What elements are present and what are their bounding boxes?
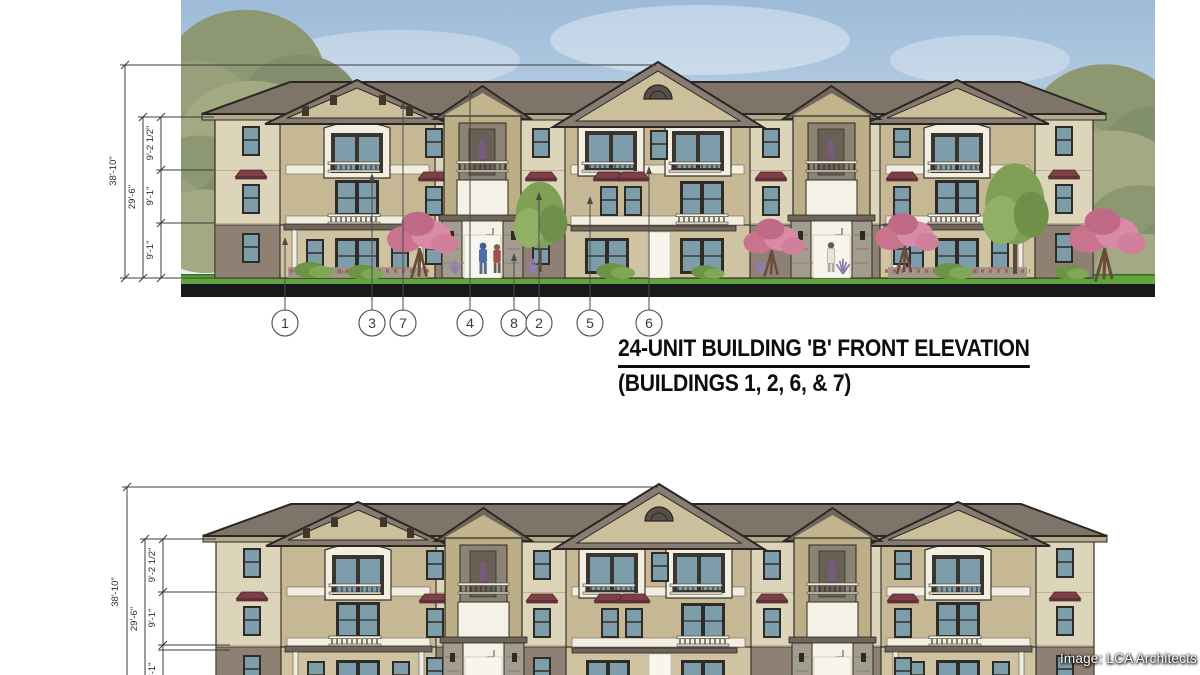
building-facade-front: [202, 62, 1106, 278]
callout-7: 7: [399, 315, 407, 331]
dim-floor1-top: 9'-1": [145, 241, 156, 260]
dim-floor3-bottom: 9'-2 1/2": [147, 548, 158, 583]
callout-circles: 1 3 7 4 8 2 5 6: [272, 310, 662, 336]
callout-1: 1: [281, 315, 289, 331]
architectural-elevation-sheet: 38'-10" 29'-6" 9'-2 1/2" 9'-1" 9'-1": [0, 0, 1200, 675]
bottom-elevation-drawing: 38'-10" 29'-6" 9'-2 1/2" 9'-1" 9'-1": [110, 483, 1107, 675]
drawing-title-line1: 24-UNIT BUILDING 'B' FRONT ELEVATION: [618, 336, 1030, 368]
top-elevation-drawing: 38'-10" 29'-6" 9'-2 1/2" 9'-1" 9'-1": [108, 0, 1200, 336]
drawing-title-line2: (BUILDINGS 1, 2, 6, & 7): [618, 371, 1030, 398]
dim-overall-bottom: 38'-10": [110, 577, 121, 606]
building-facade-rear: [203, 484, 1107, 675]
dim-overall-top: 38'-10": [108, 156, 119, 185]
dim-floor1-bottom: 9'-1": [147, 663, 158, 675]
dim-floor3-top: 9'-2 1/2": [145, 126, 156, 161]
callout-2: 2: [535, 315, 543, 331]
callout-3: 3: [368, 315, 376, 331]
dim-floor2-bottom: 9'-1": [147, 609, 158, 628]
callout-6: 6: [645, 315, 653, 331]
drawing-title: 24-UNIT BUILDING 'B' FRONT ELEVATION (BU…: [618, 336, 1030, 398]
dim-upper-bottom: 29'-6": [129, 607, 140, 631]
image-credit: Image: LCA Architects: [1060, 651, 1197, 666]
dim-floor2-top: 9'-1": [145, 187, 156, 206]
callout-8: 8: [510, 315, 518, 331]
ground-band: [181, 284, 1155, 297]
callout-4: 4: [466, 315, 474, 331]
callout-5: 5: [586, 315, 594, 331]
dim-upper-top: 29'-6": [127, 185, 138, 209]
